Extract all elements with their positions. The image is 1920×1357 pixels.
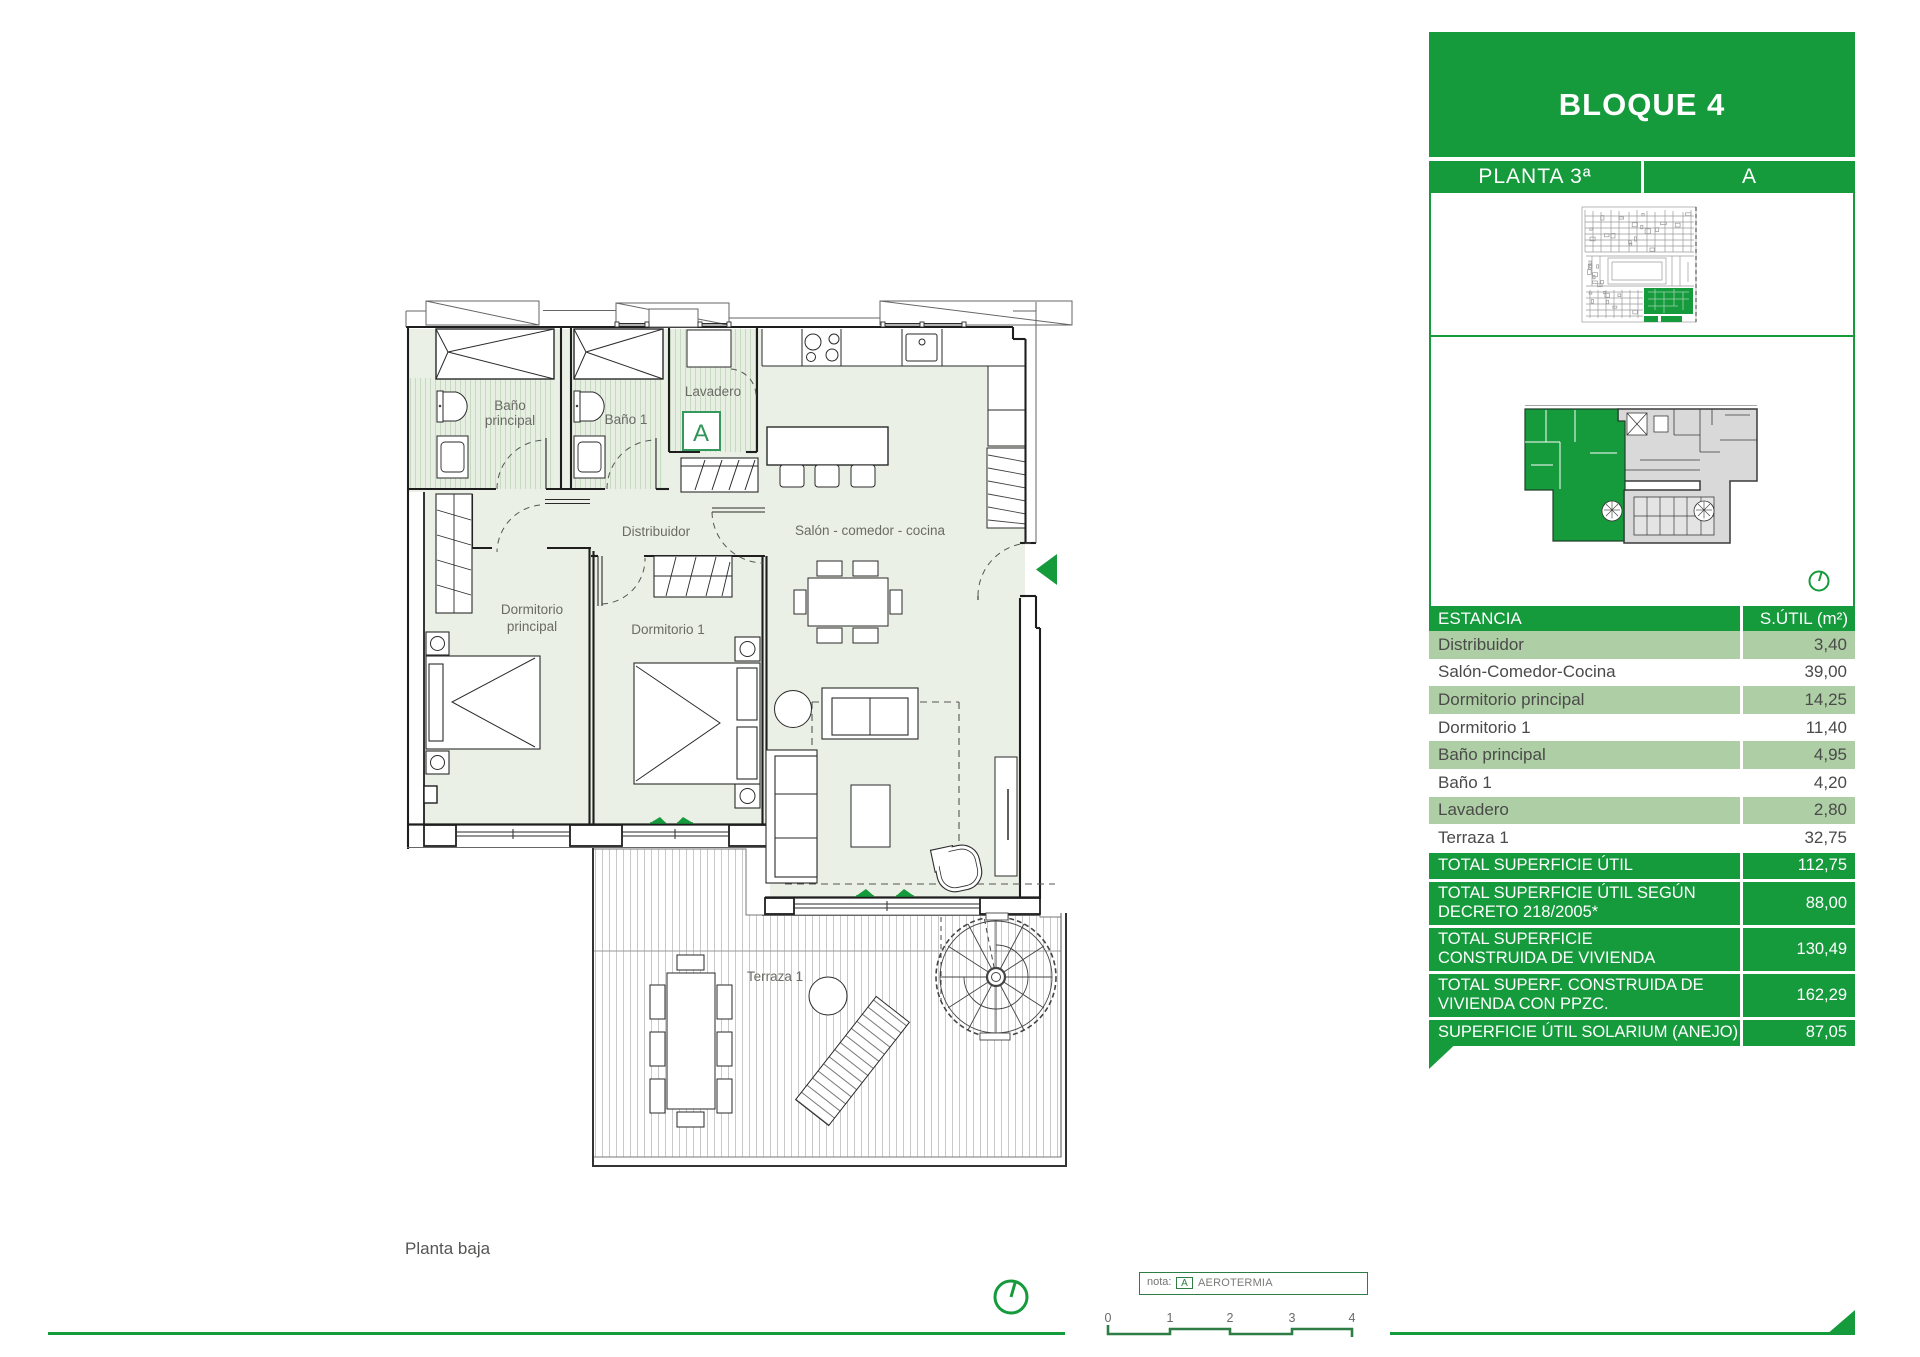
- svg-text:Distribuidor: Distribuidor: [622, 524, 691, 539]
- svg-text:Dormitorio: Dormitorio: [501, 602, 563, 617]
- svg-text:A: A: [693, 420, 709, 447]
- svg-text:Baño 1: Baño 1: [605, 412, 648, 427]
- svg-text:Salón - comedor - cocina: Salón - comedor - cocina: [795, 523, 946, 538]
- svg-text:0: 0: [1105, 1311, 1112, 1325]
- svg-text:Terraza 1: Terraza 1: [747, 969, 803, 984]
- svg-text:Dormitorio 1: Dormitorio 1: [631, 622, 705, 637]
- svg-text:principal: principal: [507, 619, 557, 634]
- svg-text:3: 3: [1289, 1311, 1296, 1325]
- svg-text:2: 2: [1227, 1311, 1234, 1325]
- svg-text:1: 1: [1167, 1311, 1174, 1325]
- svg-text:4: 4: [1349, 1311, 1356, 1325]
- svg-text:Lavadero: Lavadero: [685, 384, 741, 399]
- svg-text:principal: principal: [485, 413, 535, 428]
- svg-text:Baño: Baño: [494, 398, 526, 413]
